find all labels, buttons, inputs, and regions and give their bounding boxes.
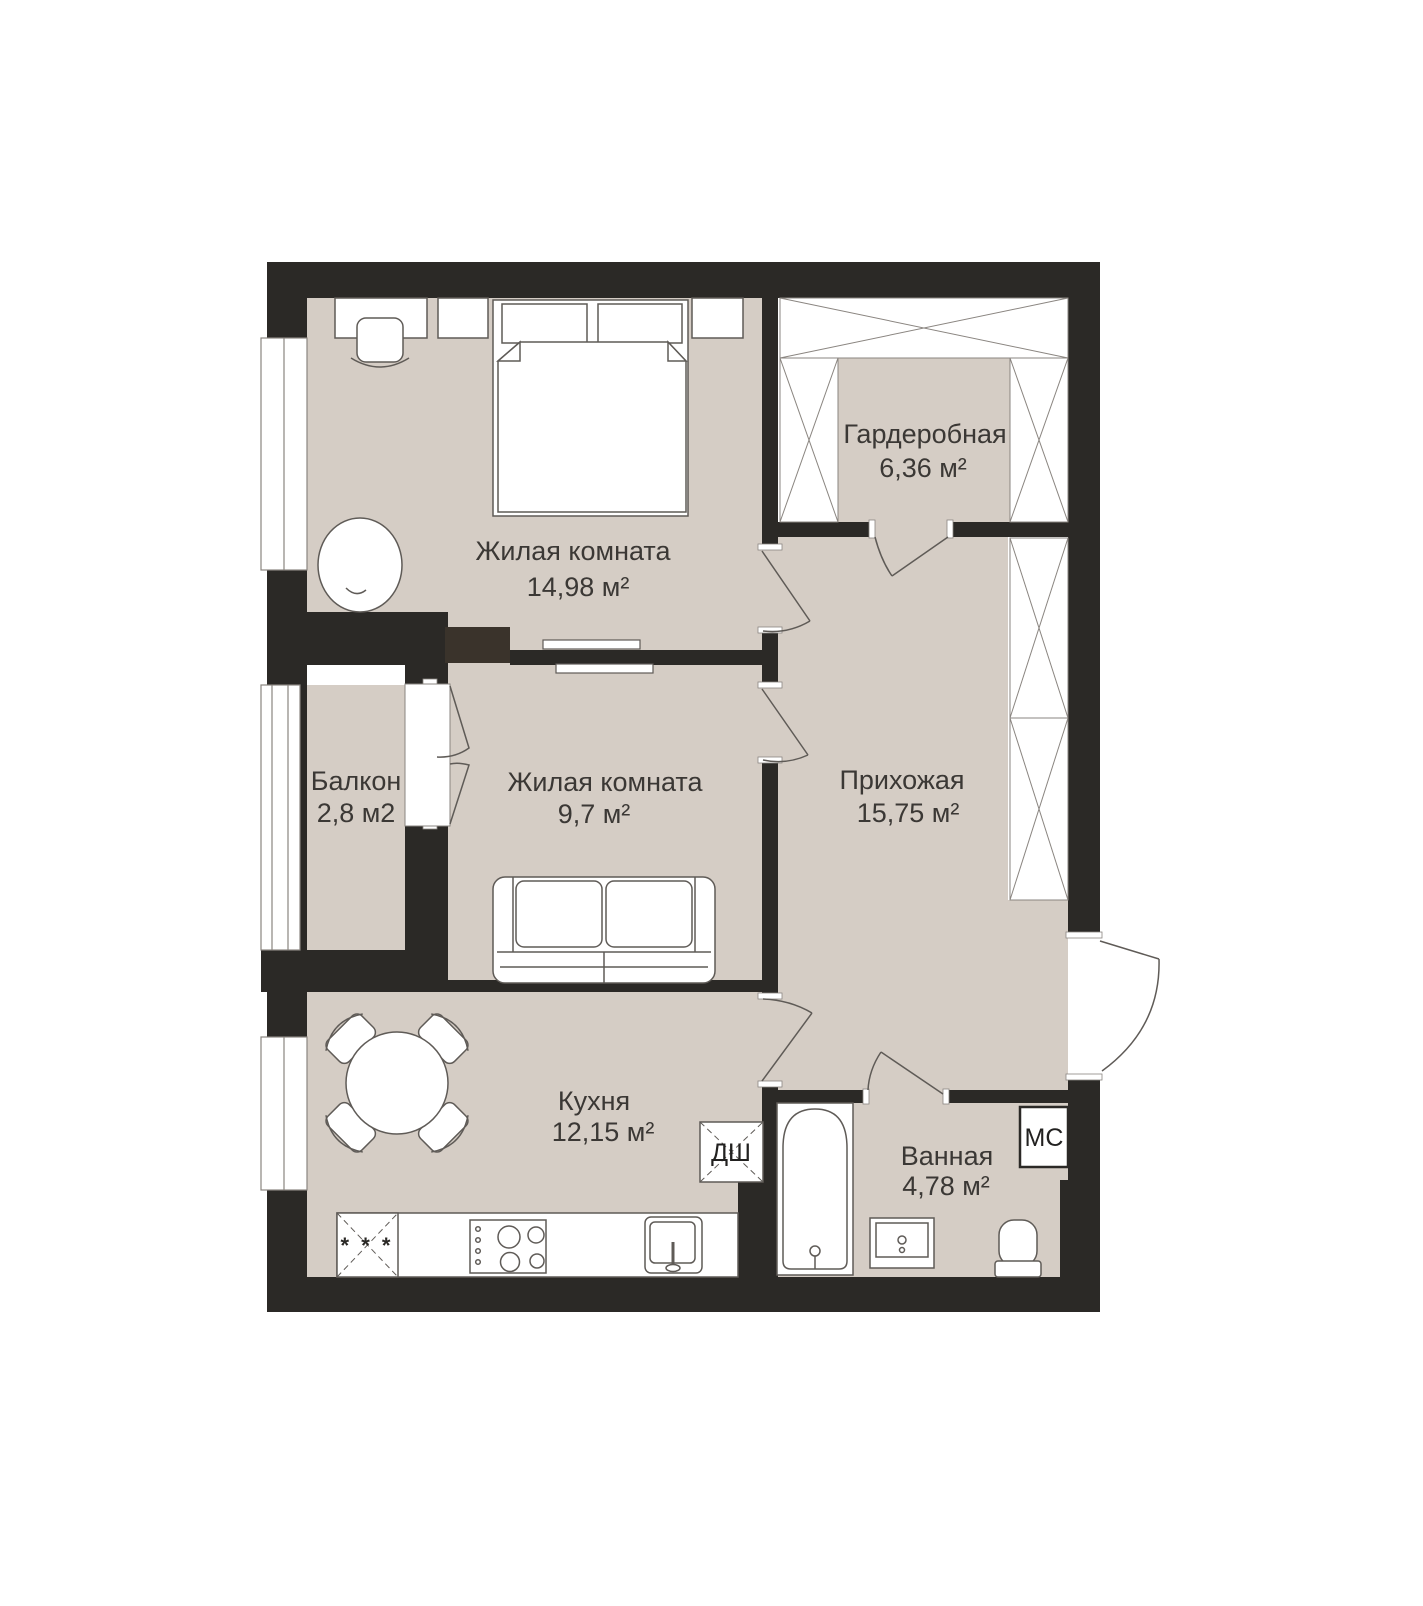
wardrobe-top-cabinet xyxy=(780,298,1068,358)
label-kitchen-name: Кухня xyxy=(558,1086,630,1116)
label-hallway-name: Прихожая xyxy=(839,765,964,795)
windows xyxy=(261,338,307,1190)
bathroom-sink xyxy=(870,1218,934,1268)
opening-wardrobe xyxy=(873,522,950,537)
label-balcony-area: 2,8 м2 xyxy=(317,798,396,828)
bedroom2-furniture xyxy=(493,877,715,983)
label-bedroom1-name: Жилая комната xyxy=(475,536,671,566)
bedside-cabinet xyxy=(692,298,743,338)
wall-junction-block xyxy=(445,627,510,663)
label-utility-cabinet: МС xyxy=(1025,1124,1064,1152)
wall-bedroom1-step xyxy=(295,612,448,665)
opening-bedroom2 xyxy=(762,687,778,758)
wall-top xyxy=(267,262,1100,298)
blanket xyxy=(498,342,686,512)
label-bedroom2-area: 9,7 м² xyxy=(558,799,631,829)
wall-right xyxy=(1068,262,1100,1312)
label-bathroom-area: 4,78 м² xyxy=(902,1171,990,1201)
floor-hallway-right xyxy=(1008,900,1068,1090)
pillow xyxy=(502,304,587,343)
label-wardrobe-area: 6,36 м² xyxy=(879,453,967,483)
label-bedroom1-area: 14,98 м² xyxy=(527,572,630,602)
label-duct-shaft: ДШ xyxy=(711,1139,751,1167)
wall-balcony-right-lower xyxy=(405,824,448,980)
bathtub xyxy=(777,1103,853,1275)
hallway-closet-lower xyxy=(1010,718,1068,900)
wall-bathroom-right-step xyxy=(1060,1180,1100,1277)
wardrobe-left-cabinet xyxy=(780,358,838,522)
shelf xyxy=(438,298,488,338)
wall-bottom xyxy=(267,1277,1100,1312)
label-fridge-marks: * * * xyxy=(341,1233,394,1258)
opening-entrance xyxy=(1068,937,1100,1075)
sofa xyxy=(493,877,715,983)
round-table xyxy=(346,1032,448,1134)
wall-interior-vertical xyxy=(762,295,778,1277)
hallway-closet-upper xyxy=(1010,538,1068,718)
window-kitchen xyxy=(261,1037,307,1190)
window-bedroom1 xyxy=(261,338,307,570)
floor-plan-page: Жилая комната 14,98 м² Гардеробная 6,36 … xyxy=(0,0,1423,1606)
kitchen-sink xyxy=(645,1217,702,1273)
label-hallway-area: 15,75 м² xyxy=(857,798,960,828)
label-wardrobe-name: Гардеробная xyxy=(843,419,1006,449)
label-balcony-name: Балкон xyxy=(311,766,402,796)
wardrobe-right-cabinet xyxy=(1010,358,1068,522)
toilet xyxy=(995,1220,1041,1277)
label-kitchen-area: 12,15 м² xyxy=(552,1117,655,1147)
label-bedroom2-name: Жилая комната xyxy=(507,767,703,797)
pillow xyxy=(598,304,682,343)
floor-plan-drawing: Жилая комната 14,98 м² Гардеробная 6,36 … xyxy=(0,0,1423,1606)
label-bathroom-name: Ванная xyxy=(901,1141,993,1171)
opening-bathroom xyxy=(868,1090,945,1103)
wall-bedroom-divider xyxy=(510,650,762,665)
wall-kitchen-bath xyxy=(738,1182,762,1277)
stove xyxy=(470,1220,546,1273)
double-bed xyxy=(493,300,688,516)
window-balcony-glazing xyxy=(261,685,300,950)
door-entrance xyxy=(1100,941,1159,1071)
desk-chair xyxy=(351,318,409,367)
opening-bedroom1 xyxy=(762,549,778,628)
round-rug xyxy=(318,518,402,612)
